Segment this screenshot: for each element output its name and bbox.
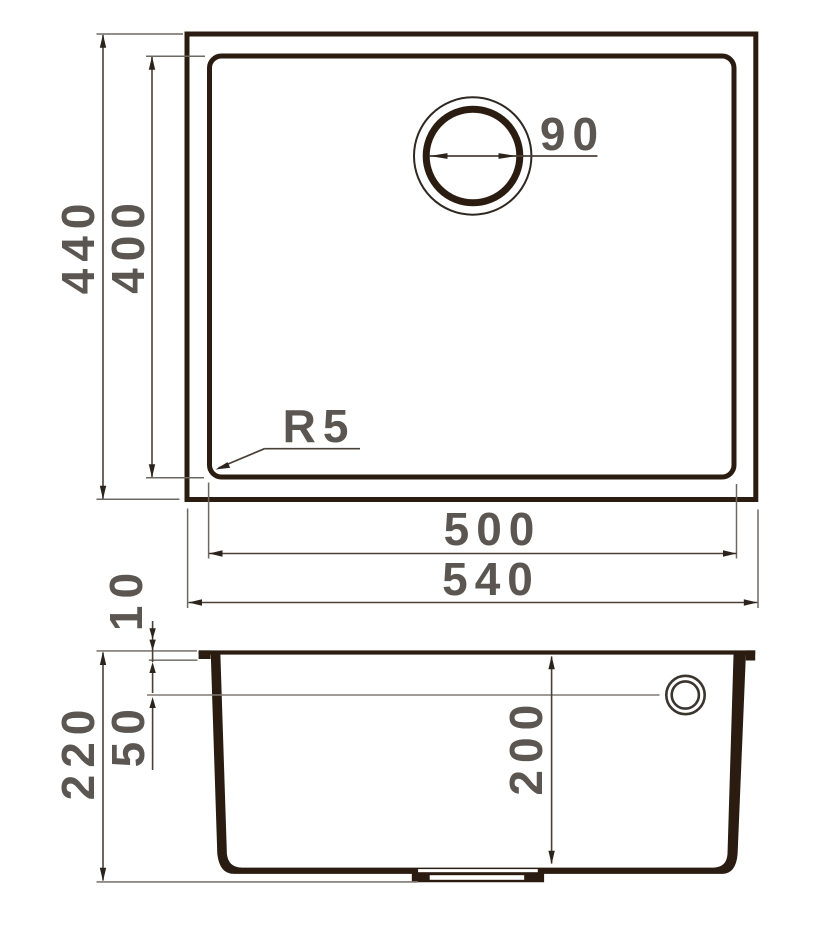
svg-text:500: 500 (444, 503, 542, 555)
svg-text:R5: R5 (283, 400, 356, 452)
svg-text:440: 440 (52, 197, 104, 295)
svg-text:540: 540 (442, 553, 540, 605)
svg-text:90: 90 (540, 108, 605, 160)
svg-text:50: 50 (102, 702, 154, 767)
svg-text:400: 400 (102, 196, 154, 294)
svg-text:220: 220 (52, 703, 104, 801)
svg-text:10: 10 (100, 566, 152, 631)
svg-text:200: 200 (500, 698, 552, 796)
